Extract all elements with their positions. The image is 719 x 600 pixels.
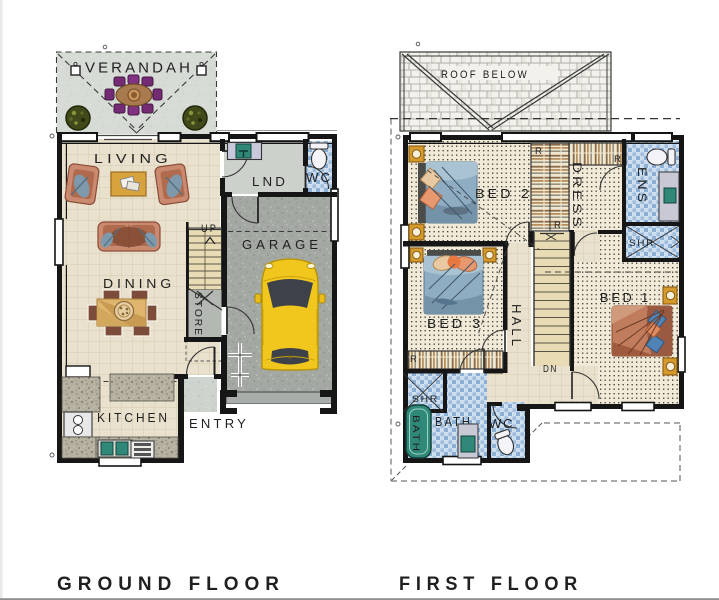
svg-text:R: R bbox=[535, 146, 542, 157]
svg-text:SHR: SHR bbox=[412, 394, 439, 404]
svg-text:R: R bbox=[614, 154, 621, 165]
svg-text:BED 3: BED 3 bbox=[427, 316, 483, 331]
svg-text:KITCHEN: KITCHEN bbox=[97, 410, 170, 425]
svg-text:R: R bbox=[554, 220, 561, 231]
svg-text:STORE: STORE bbox=[192, 292, 204, 337]
svg-text:ENS: ENS bbox=[635, 167, 649, 205]
svg-text:FIRST FLOOR: FIRST FLOOR bbox=[399, 574, 583, 595]
svg-text:BED 2: BED 2 bbox=[475, 186, 532, 201]
svg-text:DRESS: DRESS bbox=[570, 162, 584, 230]
svg-text:UP: UP bbox=[201, 223, 218, 235]
svg-text:VERANDAH: VERANDAH bbox=[85, 61, 193, 77]
svg-text:HALL: HALL bbox=[509, 304, 524, 349]
svg-text:ROOF BELOW: ROOF BELOW bbox=[441, 69, 529, 81]
svg-text:GARAGE: GARAGE bbox=[242, 237, 322, 252]
svg-text:DN: DN bbox=[543, 364, 558, 375]
svg-text:DINING: DINING bbox=[103, 276, 175, 291]
svg-text:SHR: SHR bbox=[629, 238, 655, 248]
svg-text:WC: WC bbox=[306, 170, 332, 185]
svg-text:BATH: BATH bbox=[411, 415, 421, 453]
svg-text:ENTRY: ENTRY bbox=[189, 416, 249, 431]
svg-text:LIVING: LIVING bbox=[94, 151, 172, 166]
svg-text:BED 1: BED 1 bbox=[600, 290, 651, 305]
svg-text:R: R bbox=[410, 354, 417, 365]
svg-text:WC: WC bbox=[489, 416, 514, 431]
svg-text:LND: LND bbox=[252, 174, 288, 189]
svg-text:GROUND FLOOR: GROUND FLOOR bbox=[57, 574, 285, 595]
